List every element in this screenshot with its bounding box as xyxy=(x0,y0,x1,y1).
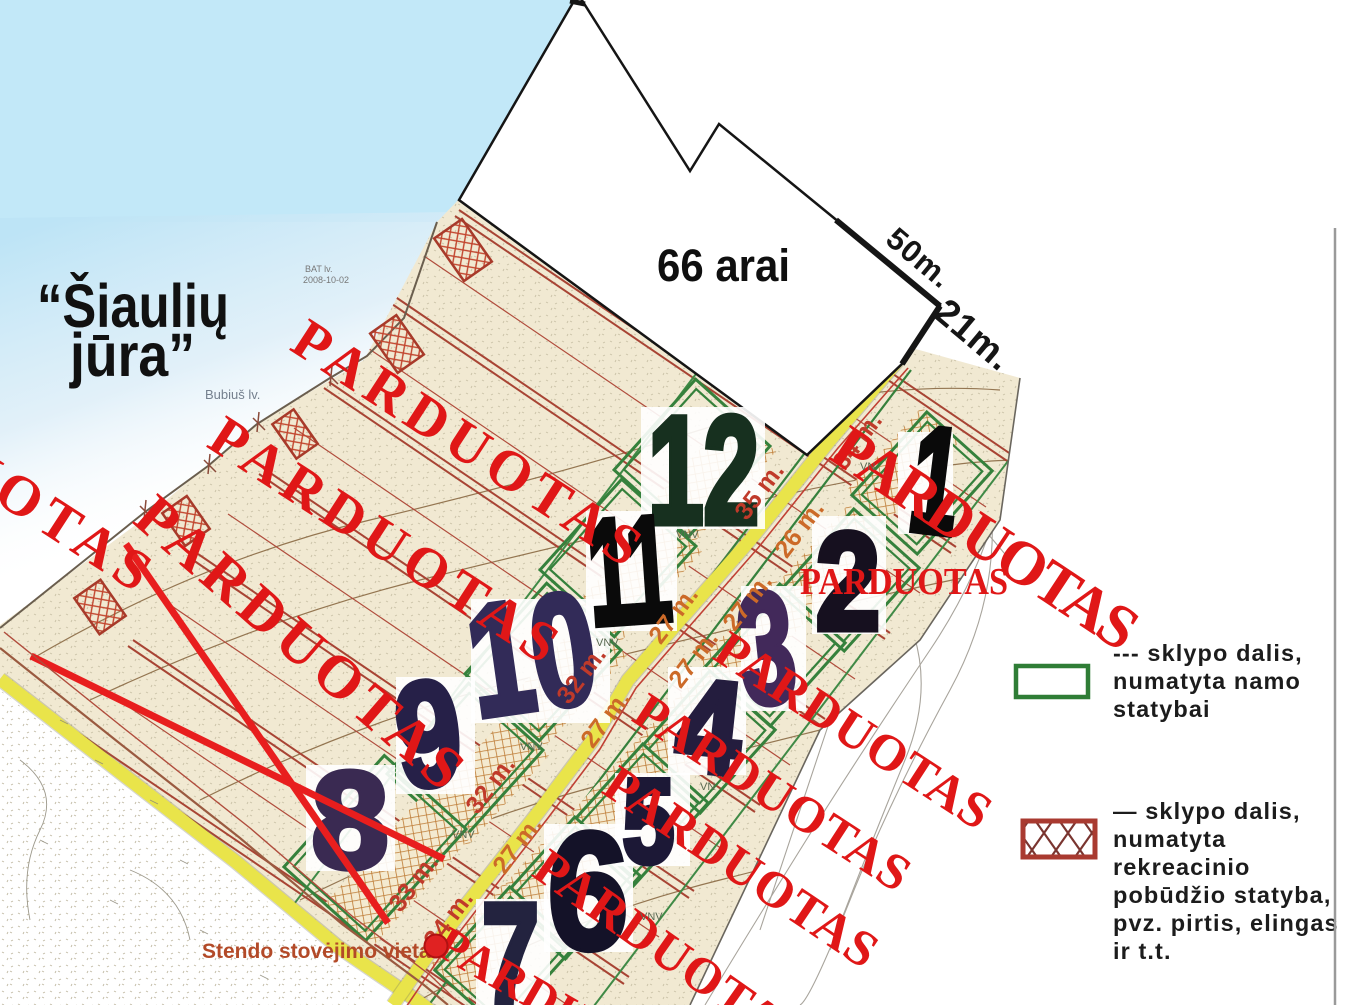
svg-text:PARDUOTAS: PARDUOTAS xyxy=(800,561,1008,603)
svg-text:VNV: VNV xyxy=(676,529,699,541)
svg-text:VN: VN xyxy=(700,781,715,793)
svg-text:numatyta: numatyta xyxy=(1113,826,1226,852)
svg-text:Stendo stovėjimo vieta: Stendo stovėjimo vieta xyxy=(202,940,431,963)
svg-text:pvz. pirtis, elingas: pvz. pirtis, elingas xyxy=(1113,910,1339,936)
svg-text:VNV: VNV xyxy=(520,741,543,753)
svg-text:VNV: VNV xyxy=(452,829,475,841)
svg-text:numatyta namo: numatyta namo xyxy=(1113,668,1301,694)
svg-text:rekreacinio: rekreacinio xyxy=(1113,854,1251,880)
svg-text:jūra”: jūra” xyxy=(69,321,195,389)
svg-text:Bubiuš lv.: Bubiuš lv. xyxy=(205,387,260,402)
svg-text:ir t.t.: ir t.t. xyxy=(1113,938,1172,964)
svg-text:— sklypo dalis,: — sklypo dalis, xyxy=(1113,798,1301,824)
svg-text:pobūdžio statyba,: pobūdžio statyba, xyxy=(1113,882,1331,908)
svg-text:2008-10-02: 2008-10-02 xyxy=(303,275,349,285)
svg-text:statybai: statybai xyxy=(1113,696,1211,722)
svg-text:VNV: VNV xyxy=(640,911,663,923)
svg-text:BAT lv.: BAT lv. xyxy=(305,264,333,274)
svg-text:VNV: VNV xyxy=(596,637,619,649)
svg-text:--- sklypo dalis,: --- sklypo dalis, xyxy=(1113,640,1303,666)
svg-text:VN: VN xyxy=(860,461,875,473)
svg-text:66 arai: 66 arai xyxy=(657,240,790,291)
